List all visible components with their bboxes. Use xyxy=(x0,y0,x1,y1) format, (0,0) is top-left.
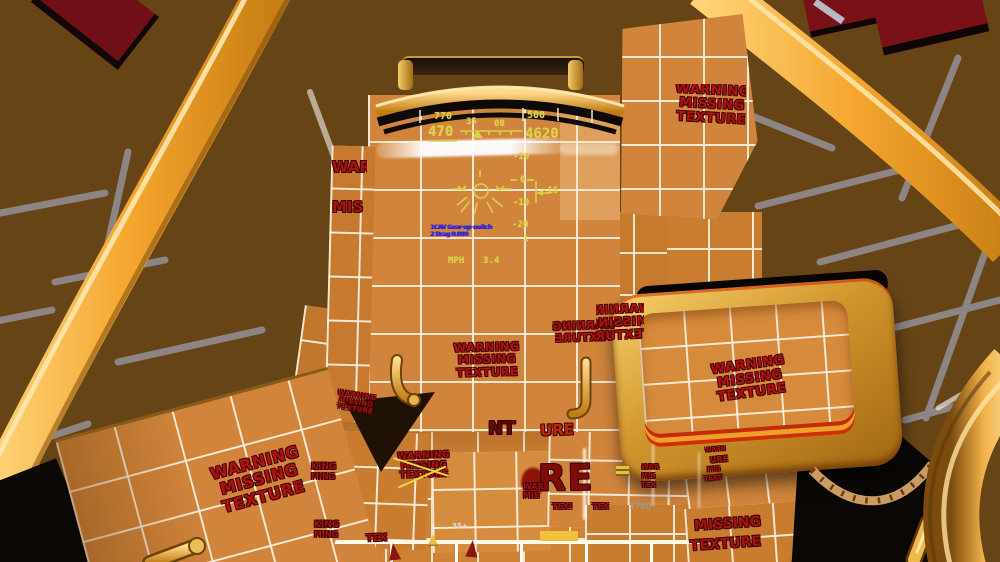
right-edge-beam xyxy=(930,368,1000,562)
hud-unit-label: MPH xyxy=(448,256,464,266)
hud-debug-line-2: 2 Drag 0.000 xyxy=(430,231,468,238)
hud-pitch-label: -10 xyxy=(513,152,529,162)
text-fragment: MING xyxy=(314,530,338,539)
text-fragment: KING xyxy=(314,520,339,530)
hud-altitude-tape: 500 xyxy=(527,110,545,121)
hud-symbology xyxy=(429,131,551,215)
warning-missing-texture-mirrored: WARNING MISSING TEXTURE xyxy=(596,303,644,344)
text-fragment: KING xyxy=(311,462,336,472)
warning-line: TEXTURE xyxy=(665,110,746,129)
tick-strip-bottom-right xyxy=(812,464,932,501)
fragment-clip-left-strip: WAR MIS xyxy=(330,156,367,228)
hud-airspeed-tape: 770 xyxy=(434,111,452,122)
hud-pitch-label: -20 xyxy=(512,220,528,230)
text-fragment: MING xyxy=(311,472,335,481)
hud-heading-right: 00 xyxy=(494,119,505,129)
text-fragment: WAR xyxy=(523,482,544,491)
hud-aoa-value: -16 xyxy=(542,186,558,196)
warning-clip-right-tall: WARNING MISSING TEXTURE xyxy=(664,84,746,142)
hud-unit-value: 3.4 xyxy=(483,256,499,266)
text-fragment: MIS xyxy=(641,472,656,480)
text-fragment: TEX! xyxy=(552,502,573,511)
hud-pitch-label: -10 xyxy=(513,198,529,208)
warning-clip-mirrored-2: WARNING MISSING TEXTURE xyxy=(596,303,644,361)
text-fragment: TEX xyxy=(592,502,609,511)
hud-pitch-label: 0 xyxy=(520,175,525,185)
text-fragment: WAR xyxy=(641,463,659,471)
hud-altitude: 4620 xyxy=(525,126,559,142)
game-viewport[interactable]: WARNING MISSING TEXTURE WARNING MISSING … xyxy=(0,0,1000,562)
hud-debug-line-1: 1CAV Gear-up-switch xyxy=(430,224,491,231)
text-fragment: WAR xyxy=(332,158,367,176)
warning-missing-texture-center: WARNING MISSING TEXTURE xyxy=(448,340,527,379)
text-fragment: MIS xyxy=(707,464,721,473)
text-fragment-big: NT xyxy=(488,418,515,439)
text-fragment: TEXT xyxy=(704,473,723,483)
text-fragment-number: 3760 xyxy=(629,502,651,511)
text-fragment-big: URE xyxy=(540,420,575,439)
warning-missing-texture-right-tall: WARNING MISSING TEXTURE xyxy=(665,84,746,128)
fragment-clip-right-column: WAR MIS TEX xyxy=(641,463,667,493)
hud-heading-left: 35 xyxy=(466,117,477,127)
text-fragment: TEX xyxy=(641,481,656,489)
text-fragment: URE xyxy=(710,454,729,465)
text-fragment: MIS xyxy=(523,491,540,500)
hud-airspeed: 470 xyxy=(428,124,453,140)
hud-misc-value: 1 xyxy=(523,234,528,244)
warning-line: TEXTURE xyxy=(596,327,644,344)
text-fragment: TEX xyxy=(366,533,388,545)
text-fragment-giant: RE xyxy=(538,458,595,500)
text-fragment: MIS xyxy=(332,198,363,216)
text-fragment-number: 35+ xyxy=(452,522,468,530)
foreground-structure xyxy=(0,0,1000,562)
warning-line: TEXTURE xyxy=(448,365,526,379)
